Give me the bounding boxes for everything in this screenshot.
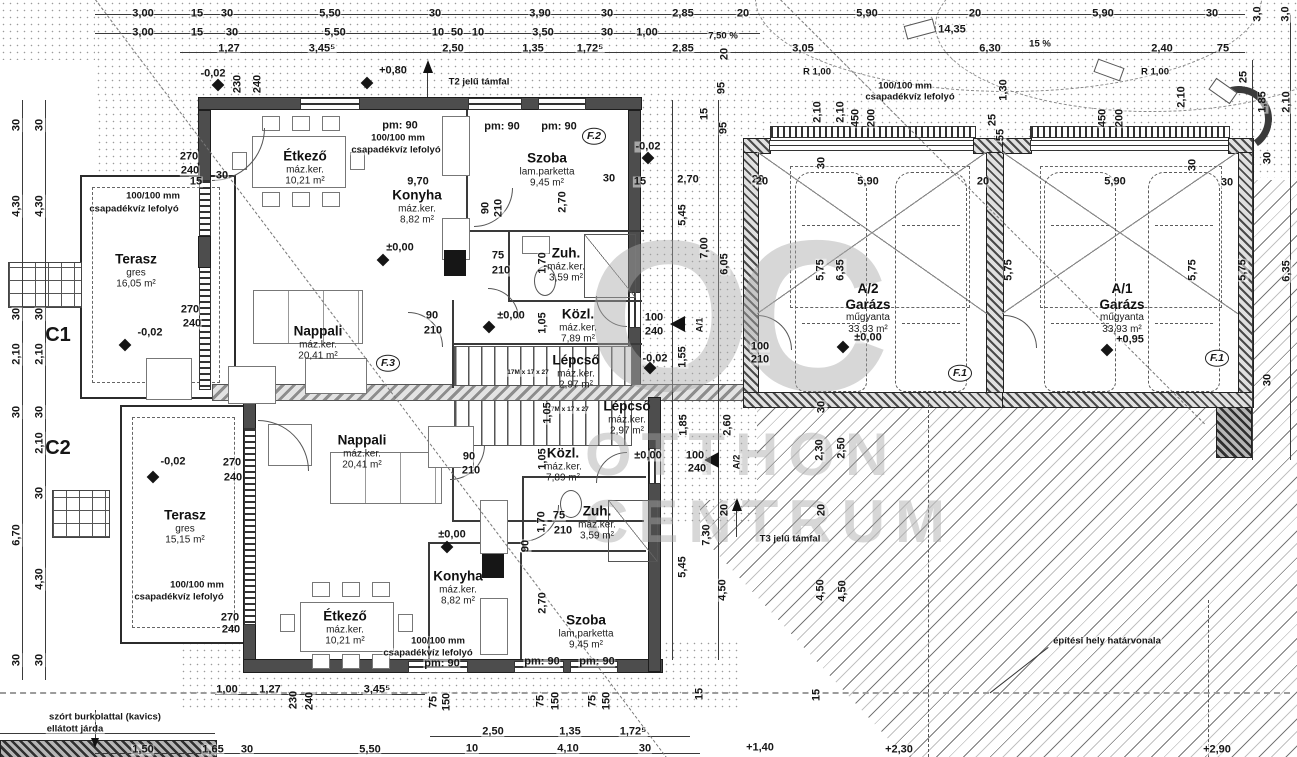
kitchen-counter (442, 116, 470, 176)
dim-label: 30 (12, 405, 23, 419)
dim-label: 90 (481, 201, 492, 215)
glazed-wall (244, 428, 256, 625)
boundary-line (1208, 600, 1209, 757)
dim-label: 2,70 (676, 175, 699, 186)
annotation: A/2 (732, 454, 742, 471)
room-rn: Szoba (558, 613, 613, 629)
coffee-table (305, 358, 367, 394)
dim-label: 1,85 (679, 413, 690, 436)
dim-label: 100 (685, 451, 705, 462)
dim-label: 5,75 (1188, 258, 1199, 281)
dim-label: 30 (602, 174, 616, 185)
dim-label: 150 (442, 692, 453, 712)
dim-label: -0,02 (641, 354, 668, 365)
dim-label: 5,75 (816, 258, 827, 281)
dim-label: 5,90 (1091, 9, 1114, 20)
room-label: Nappalimáz.ker.20,41 m² (338, 433, 387, 472)
garage-wall (743, 392, 1004, 408)
t2-arrow (423, 60, 433, 73)
partition (452, 343, 642, 345)
reference-marker: F.2 (582, 128, 606, 145)
room-ru: A/1 (1099, 281, 1144, 297)
shower-tray (584, 234, 636, 298)
dim-label: 3,05 (791, 44, 814, 55)
dim-label: 20 (720, 47, 731, 61)
dim-label: 240 (687, 464, 707, 475)
dim-label: 25 (988, 113, 999, 127)
room-ra: 7,89 m² (559, 334, 597, 346)
dim-label: 30 (225, 28, 239, 39)
dim-label: +2,90 (1202, 745, 1232, 756)
boundary-line (928, 400, 929, 757)
dim-label: -0,02 (136, 328, 163, 339)
room-label: A/2Garázsműgyanta33,93 m² (845, 281, 890, 335)
dim-label: 10 (431, 28, 445, 39)
dim-label: 9,70 (406, 177, 429, 188)
room-rf: máz.ker. (603, 414, 650, 426)
room-ra: 8,82 m² (433, 596, 483, 608)
dim-label: ±0,00 (437, 530, 466, 541)
dim-label: 6,30 (978, 44, 1001, 55)
dim-label: 15 (189, 177, 203, 188)
dim-label: 2,50 (837, 436, 848, 459)
dim-label: 30 (1205, 9, 1219, 20)
dimension-line (718, 100, 719, 660)
dim-label: 30 (1220, 178, 1234, 189)
dimension-line (95, 14, 1245, 15)
dim-label: 20 (968, 9, 982, 20)
exterior-stairs (52, 490, 110, 538)
annotation: 100/100 mm (169, 580, 225, 590)
room-rn: Nappali (338, 433, 387, 449)
dim-label: 5,50 (358, 745, 381, 756)
unit-label: C1 (44, 325, 72, 345)
room-ra: 33,93 m² (1099, 324, 1144, 336)
dim-label: 2,85 (671, 9, 694, 20)
room-rn: Szoba (519, 151, 574, 167)
dim-label: 1,05 (538, 311, 549, 334)
dim-label: 210 (750, 355, 770, 366)
room-ra: 16,05 m² (115, 279, 157, 291)
annotation: 100/100 mm (370, 133, 426, 143)
dim-label: 30 (600, 28, 614, 39)
room-ra: 3,59 m² (547, 273, 585, 285)
room-rf: máz.ker. (338, 448, 387, 460)
dim-label: 270 (220, 613, 240, 624)
chair (292, 116, 310, 131)
dim-label: 5,45 (678, 203, 689, 226)
dim-label: 30 (35, 307, 46, 321)
room-label: Étkezőmáz.ker.10,21 m² (283, 149, 327, 188)
dim-label: 5,50 (318, 9, 341, 20)
annotation: ellátott járda (46, 724, 105, 734)
dim-label: 90 (425, 311, 439, 322)
dim-label: 30 (1188, 158, 1199, 172)
dim-label: +2,30 (884, 745, 914, 756)
dim-label: 75 (491, 251, 505, 262)
room-rf: lam.parketta (558, 628, 613, 640)
stair-note: 17M x 17 x 27 (506, 370, 550, 377)
chair (280, 614, 295, 632)
annotation: 100/100 mm (410, 636, 466, 646)
dim-label: +1,40 (745, 743, 775, 754)
walkway-arrow (91, 738, 99, 748)
room-ra: 20,41 m² (294, 351, 343, 363)
dim-label: 1,65 (201, 745, 224, 756)
dim-label: 240 (305, 691, 316, 711)
room-rn: Terasz (115, 252, 157, 268)
dim-label: pm: 90 (523, 657, 560, 668)
room-rf: gres (115, 267, 157, 279)
dim-label: 3,45⁵ (308, 44, 337, 55)
annotation: R 1,00 (802, 67, 832, 77)
room-ra: 20,41 m² (338, 460, 387, 472)
dim-label: 240 (182, 319, 202, 330)
t3-leader (736, 511, 737, 537)
stipple-area (0, 0, 95, 60)
dim-label: 5,75 (1004, 258, 1015, 281)
room-label: Szobalam.parketta9,45 m² (519, 151, 574, 190)
dim-label: 30 (817, 156, 828, 170)
dim-label: 75 (429, 695, 440, 709)
room-ra: 15,15 m² (164, 535, 206, 547)
dim-label: 1,72⁵ (619, 727, 648, 738)
dim-label: 15 (695, 687, 706, 701)
dim-label: 150 (602, 691, 613, 711)
dim-label: 4,30 (35, 194, 46, 217)
dim-label: pm: 90 (578, 657, 615, 668)
room-rf: máz.ker. (559, 322, 597, 334)
dim-label: 2,30 (815, 438, 826, 461)
party-wall (212, 384, 757, 401)
dimension-line (1252, 60, 1253, 460)
garage-threshold (1030, 126, 1230, 138)
room-label: Lépcsőmáz.ker.2,97 m² (603, 399, 650, 438)
room-label: Közl.máz.ker.7,89 m² (544, 446, 582, 485)
dim-label: 210 (494, 198, 505, 218)
dim-label: 3,50 (531, 28, 554, 39)
dim-label: 6,35 (836, 258, 847, 281)
dim-label: 1,85 (1258, 90, 1269, 113)
dim-label: 30 (220, 9, 234, 20)
dim-label: 1,50 (131, 745, 154, 756)
room-rf: máz.ker. (392, 203, 442, 215)
dim-label: 2,10 (836, 100, 847, 123)
annotation: szórt burkolattal (kavics) (48, 712, 162, 722)
retaining-wall (0, 740, 217, 757)
dim-label: 2,70 (538, 591, 549, 614)
dim-label: 20 (817, 503, 828, 517)
dim-label: 30 (240, 745, 254, 756)
dim-label: 5,50 (323, 28, 346, 39)
dim-label: 5,90 (856, 177, 879, 188)
annotation: T3 jelű támfal (759, 534, 822, 544)
dim-label: 3,00 (131, 9, 154, 20)
room-rf: máz.ker. (294, 339, 343, 351)
dim-label: 150 (551, 691, 562, 711)
room-rf: lam.parketta (519, 166, 574, 178)
dim-label: 15 (812, 688, 823, 702)
dim-label: 7,30 (702, 523, 713, 546)
chair (312, 654, 330, 669)
garage-door (769, 140, 975, 151)
annotation: csapadékvíz lefolyó (350, 145, 441, 155)
room-rn: Garázs (845, 297, 890, 313)
room-ra: 8,82 m² (392, 215, 442, 227)
dim-label: 15 (190, 28, 204, 39)
room-rn: Lépcső (552, 353, 599, 369)
room-rf: műgyanta (1099, 312, 1144, 324)
window (300, 98, 360, 110)
dim-label: 75 (552, 511, 566, 522)
dim-label: -0,02 (199, 69, 226, 80)
room-rf: máz.ker. (323, 624, 367, 636)
annotation: R 1,00 (1140, 67, 1170, 77)
dim-label: 1,00 (635, 28, 658, 39)
dimension-line (215, 694, 425, 695)
dim-label: 30 (215, 171, 229, 182)
dim-label: 75 (1216, 44, 1230, 55)
reference-marker: F.1 (1205, 350, 1229, 367)
room-label: Lépcsőmáz.ker.2,97 m² (552, 353, 599, 392)
t2-leader (427, 73, 428, 97)
dim-label: 30 (35, 653, 46, 667)
dim-label: 30 (1263, 151, 1274, 165)
dim-label: 3,0 (1281, 5, 1292, 22)
dim-label: pm: 90 (423, 659, 460, 670)
dim-label: 1,27 (258, 685, 281, 696)
chair (262, 192, 280, 207)
chair (322, 192, 340, 207)
room-rn: Nappali (294, 324, 343, 340)
annotation: csapadékvíz lefolyó (382, 648, 473, 658)
room-label: Konyhamáz.ker.8,82 m² (433, 569, 483, 608)
dim-label: 4,50 (816, 578, 827, 601)
room-ra: 9,45 m² (519, 178, 574, 190)
dim-label: 270 (180, 305, 200, 316)
chair (292, 192, 310, 207)
armchair (146, 358, 192, 400)
dim-label: 3,00 (131, 28, 154, 39)
room-label: Konyhamáz.ker.8,82 m² (392, 188, 442, 227)
dim-label: 6,05 (720, 252, 731, 275)
dim-label: 20 (736, 9, 750, 20)
chair (322, 116, 340, 131)
staircase (454, 346, 632, 386)
partition (520, 552, 522, 659)
dim-label: 2,40 (1150, 44, 1173, 55)
dim-label: 30 (12, 653, 23, 667)
dim-label: 15 (633, 177, 647, 188)
room-ra: 33,93 m² (845, 324, 890, 336)
dim-label: 5,90 (1103, 177, 1126, 188)
annotation: 15 % (1028, 39, 1052, 49)
wall (198, 236, 211, 268)
annotation: T2 jelű támfal (448, 77, 511, 87)
room-label: Szobalam.parketta9,45 m² (558, 613, 613, 652)
chair (342, 582, 360, 597)
dim-label: 30 (428, 9, 442, 20)
room-ra: 2,97 m² (603, 426, 650, 438)
dimension-line (22, 100, 23, 680)
dim-label: 1,35 (558, 727, 581, 738)
dim-label: 10 (465, 744, 479, 755)
dim-label: 6,35 (1282, 259, 1293, 282)
room-rn: Terasz (164, 508, 206, 524)
dim-label: 2,70 (558, 190, 569, 213)
room-ra: 7,89 m² (544, 473, 582, 485)
room-label: Étkezőmáz.ker.10,21 m² (323, 609, 367, 648)
dim-label: 30 (1263, 373, 1274, 387)
dim-label: 2,85 (671, 44, 694, 55)
dim-label: 30 (12, 118, 23, 132)
kitchen-sink (444, 250, 466, 276)
dim-label: 4,30 (12, 194, 23, 217)
room-label: Nappalimáz.ker.20,41 m² (294, 324, 343, 363)
dim-label: 100 (750, 342, 770, 353)
annotation: csapadékvíz lefolyó (864, 92, 955, 102)
dim-label: 5,45 (678, 555, 689, 578)
dim-label: 4,50 (718, 578, 729, 601)
room-ru: A/2 (845, 281, 890, 297)
dim-label: 240 (644, 327, 664, 338)
window (538, 98, 586, 110)
dim-label: 1,72⁵ (576, 44, 605, 55)
chair (342, 654, 360, 669)
dim-label: 240 (223, 473, 243, 484)
dim-label: 240 (221, 625, 241, 636)
dim-label: 2,10 (1177, 85, 1188, 108)
room-rf: máz.ker. (578, 519, 616, 531)
room-rf: máz.ker. (544, 461, 582, 473)
room-label: Teraszgres15,15 m² (164, 508, 206, 547)
room-rf: máz.ker. (552, 368, 599, 380)
dim-label: 10 (471, 28, 485, 39)
room-rf: műgyanta (845, 312, 890, 324)
kitchen-sink (482, 554, 504, 578)
dim-label: 20 (755, 177, 769, 188)
dim-label: 5,90 (855, 9, 878, 20)
annotation: csapadékvíz lefolyó (133, 592, 224, 602)
dim-label: 3,45⁵ (363, 685, 392, 696)
dim-label: 30 (12, 307, 23, 321)
room-ra: 3,59 m² (578, 531, 616, 543)
room-ra: 10,21 m² (323, 636, 367, 648)
annotation: 7,50 % (707, 31, 739, 41)
dim-label: 1,70 (537, 510, 548, 533)
dim-label: 3,0 (1253, 5, 1264, 22)
dim-label: 4,30 (35, 567, 46, 590)
dim-label: 50 (450, 28, 464, 39)
dim-label: +0,95 (1115, 335, 1145, 346)
dim-label: pm: 90 (483, 122, 520, 133)
dim-label: 15 (190, 9, 204, 20)
room-ra: 10,21 m² (283, 176, 327, 188)
partition (522, 476, 646, 478)
room-rf: máz.ker. (283, 164, 327, 176)
dim-label: 7,00 (700, 236, 711, 259)
dim-label: 1,05 (543, 401, 554, 424)
dim-label: 30 (817, 400, 828, 414)
dim-label: pm: 90 (381, 121, 418, 132)
room-rn: Étkező (283, 149, 327, 165)
room-rf: máz.ker. (547, 261, 585, 273)
dim-label: 4,50 (838, 579, 849, 602)
dim-label: pm: 90 (540, 122, 577, 133)
dim-label: 1,00 (215, 685, 238, 696)
dim-label: 200 (867, 108, 878, 128)
dim-label: 2,50 (441, 44, 464, 55)
dim-label: 75 (588, 694, 599, 708)
window (468, 98, 522, 110)
dim-label: 270 (222, 458, 242, 469)
road-edge-line (0, 733, 215, 734)
chair (372, 582, 390, 597)
dim-label: 2,10 (1282, 90, 1293, 113)
glazed-wall (199, 180, 211, 390)
dimension-line (95, 753, 700, 754)
kitchen-counter (480, 598, 508, 655)
room-rn: Garázs (1099, 297, 1144, 313)
dim-label: 20 (976, 177, 990, 188)
dim-label: 450 (1098, 108, 1109, 128)
dim-label: 1,27 (217, 44, 240, 55)
dim-label: 270 (179, 152, 199, 163)
dim-label: 1,35 (521, 44, 544, 55)
reference-marker: F.1 (948, 365, 972, 382)
dim-label: ±0,00 (385, 243, 414, 254)
dim-label: ±0,00 (496, 311, 525, 322)
dim-label: 30 (600, 9, 614, 20)
dim-label: 1,55 (678, 345, 689, 368)
dim-label: 14,35 (937, 25, 967, 36)
partition (466, 230, 644, 232)
entry-arrow-a1 (670, 316, 685, 332)
annotation: csapadékvíz lefolyó (88, 204, 179, 214)
dim-label: 95 (719, 121, 730, 135)
dim-label: 2,10 (813, 100, 824, 123)
room-rn: Konyha (433, 569, 483, 585)
dim-label: 6,70 (12, 523, 23, 546)
room-rn: Lépcső (603, 399, 650, 415)
dim-label: 30 (35, 405, 46, 419)
room-label: Zuh.máz.ker.3,59 m² (547, 246, 585, 285)
dim-label: 230 (233, 74, 244, 94)
dim-label: 90 (462, 452, 476, 463)
dimension-line (672, 100, 673, 660)
armchair (228, 366, 276, 404)
room-label: Teraszgres16,05 m² (115, 252, 157, 291)
room-rn: Közl. (544, 446, 582, 462)
car-outline (895, 172, 967, 392)
room-rn: Közl. (559, 307, 597, 323)
dimension-line (180, 52, 1245, 53)
room-label: A/1Garázsműgyanta33,93 m² (1099, 281, 1144, 335)
dim-label: 210 (423, 326, 443, 337)
dim-label: 100 (644, 313, 664, 324)
garage-door (1030, 140, 1230, 151)
t3-arrow (732, 498, 742, 511)
unit-label: C2 (44, 438, 72, 458)
dim-label: 200 (1115, 108, 1126, 128)
dim-label: -0,02 (159, 457, 186, 468)
dim-label: 2,50 (481, 727, 504, 738)
room-rf: gres (164, 523, 206, 535)
dim-label: 210 (553, 526, 573, 537)
dim-label: 30 (35, 118, 46, 132)
dim-label: 3,90 (528, 9, 551, 20)
dim-label: 230 (289, 690, 300, 710)
